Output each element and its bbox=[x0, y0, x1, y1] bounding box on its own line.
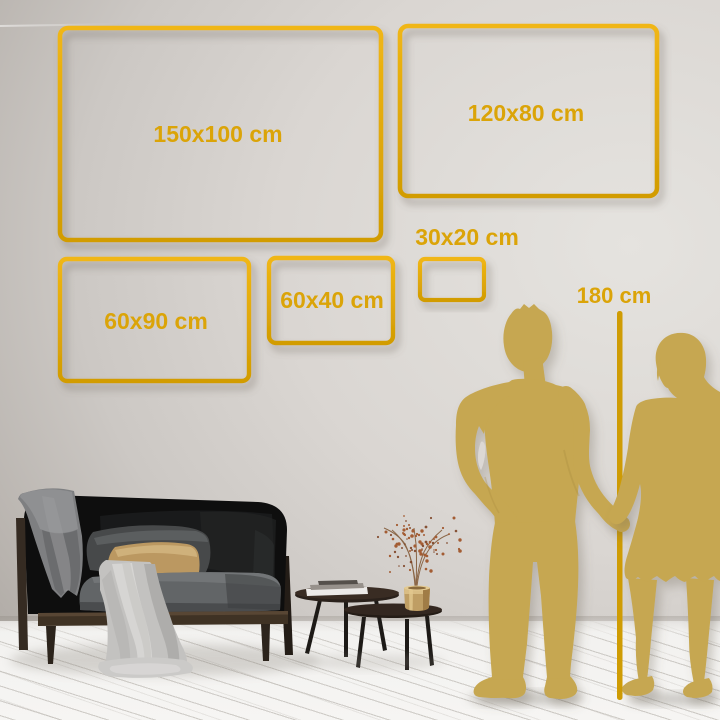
svg-text:180 cm: 180 cm bbox=[577, 283, 652, 308]
svg-text:150x100 cm: 150x100 cm bbox=[153, 121, 282, 147]
svg-text:120x80 cm: 120x80 cm bbox=[468, 100, 584, 126]
svg-text:60x90 cm: 60x90 cm bbox=[104, 308, 208, 334]
svg-text:30x20 cm: 30x20 cm bbox=[415, 224, 519, 250]
svg-text:60x40 cm: 60x40 cm bbox=[280, 287, 384, 313]
